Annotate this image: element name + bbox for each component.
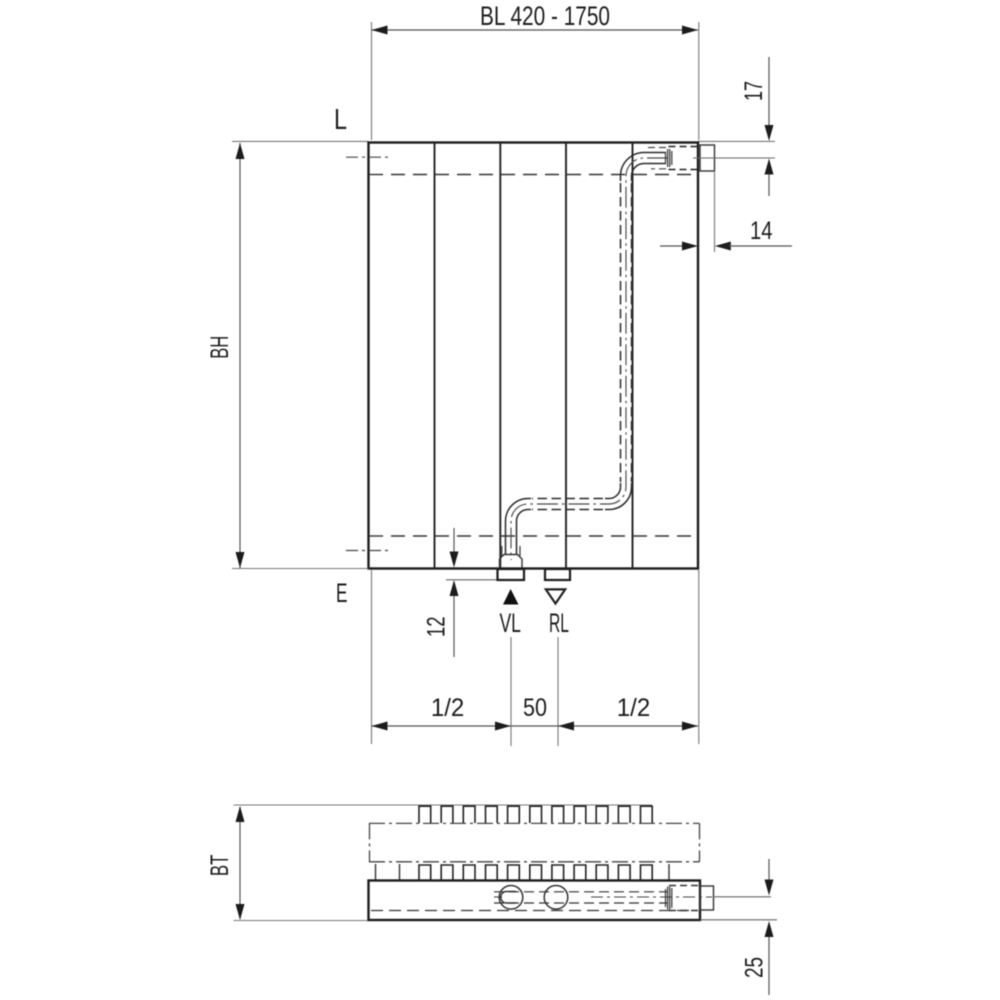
svg-text:17: 17 — [740, 81, 768, 101]
svg-text:L: L — [334, 104, 347, 136]
svg-text:50: 50 — [523, 694, 547, 722]
svg-text:BT: BT — [206, 855, 234, 877]
svg-text:RL: RL — [549, 608, 569, 638]
svg-text:VL: VL — [499, 608, 521, 638]
svg-text:25: 25 — [740, 957, 768, 978]
svg-text:1/2: 1/2 — [617, 694, 651, 722]
svg-text:BL 420 - 1750: BL 420 - 1750 — [480, 1, 610, 31]
svg-text:12: 12 — [423, 616, 451, 637]
svg-text:BH: BH — [206, 336, 234, 359]
svg-text:E: E — [336, 578, 348, 608]
svg-text:1/2: 1/2 — [431, 694, 465, 722]
svg-text:14: 14 — [750, 217, 773, 245]
